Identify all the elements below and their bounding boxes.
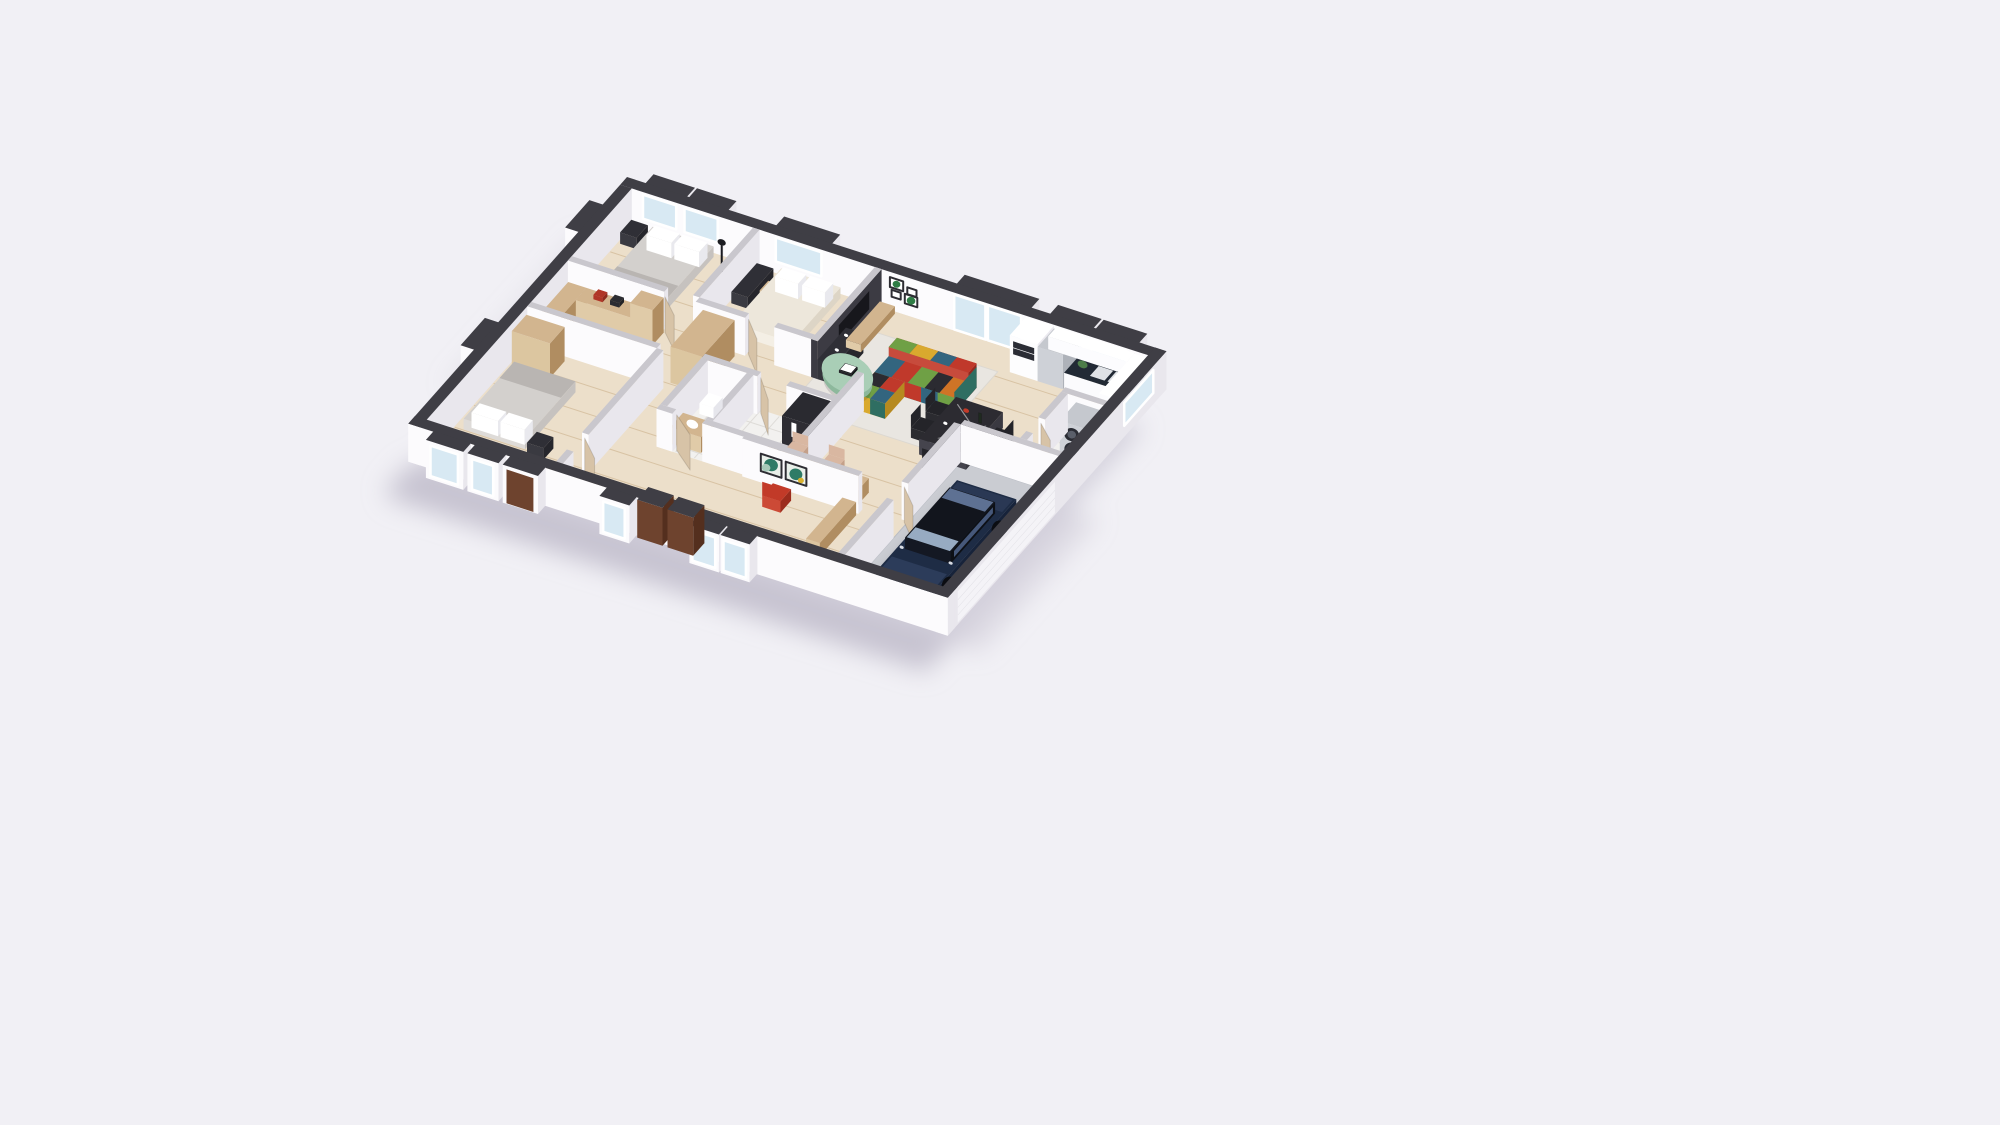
wall-nook [858,472,862,514]
window [603,501,625,538]
wall [672,409,676,451]
window [472,459,493,496]
window [724,540,746,578]
wall-southwest [948,590,955,636]
bottle [979,413,982,424]
floorplan-stage [0,0,2000,1125]
tv-media-wall [811,339,818,379]
wall [657,409,673,452]
floorplan-3d-render [0,0,2000,1125]
